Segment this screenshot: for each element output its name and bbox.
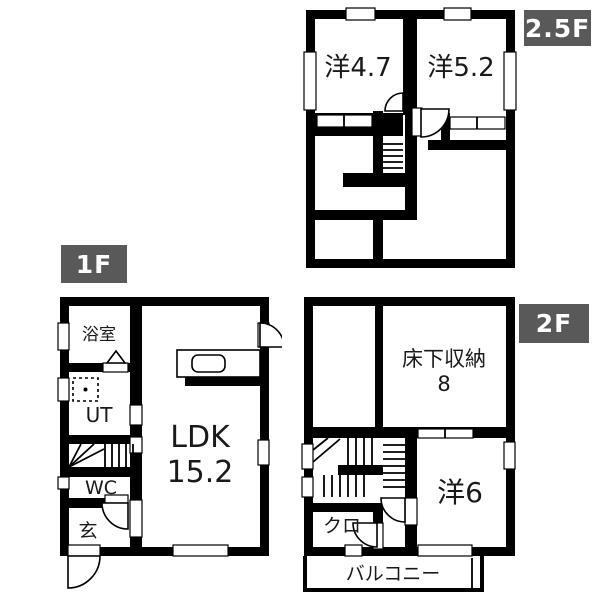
room-label-ut: UT (86, 403, 114, 427)
washer-drain (84, 388, 88, 392)
door-arc-hall-entry (102, 503, 128, 529)
walls-2-5f (306, 10, 515, 268)
door-arc-front-entrance (68, 556, 100, 588)
kitchen-sink (192, 355, 225, 372)
floor-plan-canvas: 2.5F (0, 0, 600, 600)
door-arc-room47 (385, 93, 403, 111)
floor-plan-2-5f: 洋4.7 洋5.2 (300, 4, 520, 272)
floor-label-1f: 1F (61, 245, 127, 283)
room-label-wc: WC (85, 477, 117, 499)
room-label-balcony: バルコニー (346, 563, 441, 585)
floor-plan-2f: 床下収納 8 洋6 クロ バルコニー (296, 292, 526, 600)
room-label-yo47: 洋4.7 (324, 53, 391, 83)
floor-label-2-5f: 2.5F (524, 10, 591, 46)
room-label-storage: 床下収納 (402, 347, 486, 371)
door-arc-ldk-side (260, 323, 282, 347)
room-label-yo52: 洋5.2 (427, 53, 494, 83)
stairs-2-5f (383, 144, 403, 168)
bath-fixtures (73, 351, 125, 401)
room-label-storage-size: 8 (437, 372, 450, 396)
room-label-yo6: 洋6 (437, 476, 483, 509)
floor-label-2f: 2F (519, 304, 589, 343)
floor-plan-1f: 浴室 UT WC 玄 LDK 15.2 (52, 292, 282, 592)
kitchen-counter (177, 350, 260, 377)
stairs-1f (69, 444, 133, 467)
room-label-genkan: 玄 (78, 520, 97, 542)
closet-2f (418, 429, 473, 438)
room-label-closet: クロ (323, 515, 361, 537)
room-label-ldk-size: 15.2 (167, 455, 234, 490)
room-label-bathroom: 浴室 (82, 325, 116, 345)
room-label-ldk: LDK (170, 420, 231, 455)
bath-door-triangle (107, 351, 125, 363)
door-arc-yo6 (381, 498, 405, 522)
